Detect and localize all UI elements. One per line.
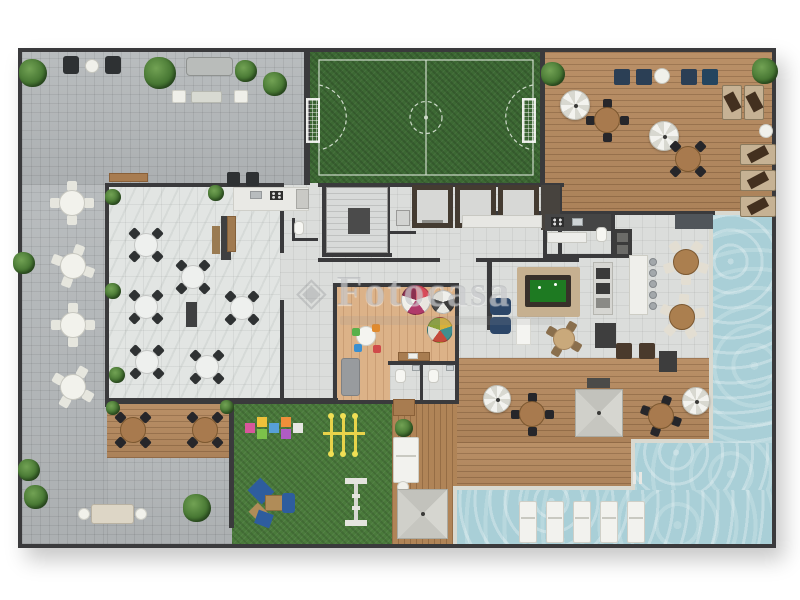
chair (678, 294, 689, 305)
planter-box (587, 378, 610, 388)
swing-post-cap (328, 413, 334, 419)
shrub (235, 60, 257, 82)
round-side-table (78, 508, 90, 520)
navy-pouf (702, 69, 718, 85)
in-pool-lounger (600, 501, 618, 543)
gourmet-table (673, 249, 699, 275)
chair (84, 198, 94, 208)
toilet (294, 221, 304, 235)
garden-bench (91, 504, 134, 524)
potted-plant (105, 189, 121, 205)
microwave (596, 298, 610, 308)
kids-chair (372, 324, 380, 332)
play-rug (401, 285, 431, 315)
party-table (135, 350, 159, 374)
wall-oven (596, 283, 610, 294)
ball-chair (654, 68, 670, 84)
fridge (296, 189, 309, 209)
bar-stool (649, 302, 657, 310)
party-table (134, 295, 158, 319)
lounger-backrest-line (548, 517, 561, 519)
hopscotch-tile (281, 417, 291, 427)
canopy-pole (597, 411, 601, 415)
shrub (183, 494, 211, 522)
shrub (19, 59, 47, 87)
shrub (263, 72, 287, 96)
swing-post-cap (352, 451, 358, 457)
kids-sofa (341, 358, 360, 396)
in-pool-lounger (573, 501, 591, 543)
billiard-ball (554, 283, 557, 286)
chair (545, 410, 554, 419)
hopscotch-tile (257, 417, 267, 427)
wall-oven (596, 268, 610, 279)
washbasin (446, 365, 454, 371)
floor-plan: ◈ Fotocasa (0, 0, 800, 600)
chair (620, 116, 629, 125)
balance-beam-rung (352, 506, 360, 510)
swing-post (342, 415, 345, 455)
pool-deck-2 (457, 443, 635, 490)
in-pool-lounger (627, 501, 645, 543)
party-table (181, 265, 205, 289)
soccer-goal (522, 98, 536, 143)
wall (333, 283, 459, 287)
deck-chair (616, 343, 632, 359)
shade-canopy (397, 489, 448, 539)
patio-umbrella (682, 387, 710, 415)
island-counter (547, 232, 587, 243)
potted-plant (220, 400, 234, 414)
double-lounger (393, 437, 419, 483)
lounger-towel (745, 92, 763, 113)
gourmet-table (669, 304, 695, 330)
swing-post-cap (328, 451, 334, 457)
navy-armchair (490, 298, 511, 315)
chair (68, 337, 78, 347)
lounger-towel (723, 92, 741, 113)
pool-water-mid (635, 443, 772, 491)
hopscotch-tile (281, 429, 291, 439)
hopscotch-tile (257, 429, 267, 439)
swing-post (330, 415, 333, 455)
wall (292, 238, 318, 241)
wood-console (212, 226, 220, 254)
billiards-felt (530, 280, 566, 302)
wall (390, 231, 416, 234)
balance-beam-end (345, 520, 367, 526)
navy-pouf (614, 69, 630, 85)
lounger-backrest-line (629, 517, 642, 519)
sun-lounger (722, 85, 742, 120)
play-rug (431, 290, 455, 314)
patio-umbrella (560, 90, 590, 120)
fridge-door (617, 233, 628, 242)
chair (603, 133, 612, 142)
bar-counter (629, 255, 648, 315)
lounger-towel (747, 171, 770, 190)
terrace-table (60, 253, 86, 279)
terrace-table (60, 312, 86, 338)
cooktop (270, 191, 283, 200)
media-cabinet (595, 323, 616, 348)
shrub (18, 459, 40, 481)
navy-pouf (636, 69, 652, 85)
umbrella-pole (695, 400, 699, 404)
play-slide (282, 493, 295, 513)
bar-stool (649, 258, 657, 266)
umbrella-pole (663, 135, 667, 139)
pool-ladder (633, 472, 636, 484)
shrub (13, 252, 35, 274)
swing-post (354, 415, 357, 455)
toilet (596, 227, 607, 242)
in-pool-lounger (519, 501, 537, 543)
hopscotch-tile (293, 423, 303, 433)
kids-chair (352, 328, 360, 336)
hopscotch-tile (269, 423, 279, 433)
wall (322, 253, 392, 257)
sun-lounger (740, 170, 776, 191)
fridge-door (617, 245, 628, 254)
wall (229, 398, 234, 528)
kitchen-sink (250, 191, 262, 199)
bar-stool (649, 280, 657, 288)
deck-table (648, 403, 674, 429)
party-kitchen (280, 322, 335, 403)
balance-beam (354, 484, 358, 520)
sun-lounger (740, 196, 776, 217)
washbasin (412, 365, 420, 371)
in-pool-lounger (546, 501, 564, 543)
lounger-towel (747, 145, 770, 164)
lounger-backrest-line (396, 455, 416, 457)
party-table (230, 296, 254, 320)
wall (487, 258, 579, 262)
garden-sofa (186, 57, 233, 76)
canopy-pole (421, 512, 425, 516)
wall (318, 258, 440, 262)
kids-chair (373, 345, 381, 353)
umbrella-pole (496, 398, 500, 402)
potted-plant (105, 283, 121, 299)
terrace-table (59, 190, 85, 216)
bar-stool (649, 291, 657, 299)
wall (455, 283, 459, 403)
lounger-backrest-line (575, 517, 588, 519)
potted-plant (106, 401, 120, 415)
cooktop (551, 217, 564, 227)
service-closet (396, 210, 410, 226)
coffee-table (191, 91, 222, 103)
toilet (395, 369, 406, 383)
wall (420, 363, 423, 403)
terrace-table (60, 374, 86, 400)
deck-table (594, 107, 620, 133)
chair (85, 320, 95, 330)
toilet (428, 369, 439, 383)
lounger-towel (747, 197, 770, 216)
elevator-door (422, 220, 444, 223)
billiards-table (525, 275, 571, 307)
kids-chair (354, 344, 362, 352)
sun-lounger (740, 144, 776, 165)
chair (227, 172, 240, 186)
play-tower (265, 495, 283, 511)
wood-cabinet (227, 216, 236, 252)
hopscotch-tile (245, 423, 255, 433)
elevator (412, 185, 453, 228)
deck-table (675, 146, 701, 172)
bar-stool (649, 269, 657, 277)
lounger-backrest-line (521, 517, 534, 519)
counter-sink (408, 353, 418, 359)
stair-landing (348, 208, 370, 234)
swing-post-cap (340, 413, 346, 419)
lounge-armchair (105, 56, 121, 74)
pergola-bar (675, 214, 713, 229)
deck-table (519, 401, 545, 427)
party-table (134, 233, 158, 257)
umbrella-pole (574, 104, 578, 108)
buffet-cabinet (186, 302, 197, 327)
potted-plant (752, 58, 778, 84)
party-table (195, 355, 219, 379)
side-table (172, 90, 186, 103)
deck-chair (639, 343, 655, 359)
soccer-goal (306, 98, 320, 143)
pool-water-right (713, 215, 772, 447)
swing-post-cap (340, 451, 346, 457)
kitchen-sink (572, 218, 583, 226)
grill-cart (659, 351, 677, 372)
ball-chair (85, 59, 99, 73)
side-table (234, 90, 248, 103)
lounge-armchair (63, 56, 79, 74)
chair (528, 427, 537, 436)
wall (280, 300, 284, 402)
swing-beam (323, 432, 365, 435)
billiard-ball (538, 286, 541, 289)
chair (67, 215, 77, 225)
deck-table (120, 417, 146, 443)
navy-pouf (681, 69, 697, 85)
wood-bench (393, 399, 415, 416)
topiary (395, 419, 413, 437)
potted-plant (541, 62, 565, 86)
round-side-table (759, 124, 773, 138)
swing-post-cap (352, 413, 358, 419)
soccer-field (310, 52, 542, 183)
pool-ladder (639, 472, 642, 484)
wood-bench (109, 173, 148, 182)
lounger-backrest-line (602, 517, 615, 519)
upper-cabinets (462, 215, 542, 228)
card-table (553, 328, 575, 350)
deck-table (192, 417, 218, 443)
watermark-subtext (340, 316, 565, 325)
shade-canopy (575, 389, 623, 437)
shrub (144, 57, 176, 89)
patio-umbrella (483, 385, 511, 413)
chair (246, 172, 259, 186)
sun-lounger (744, 85, 764, 120)
wall (333, 283, 337, 402)
chair (681, 275, 691, 285)
potted-plant (208, 185, 224, 201)
round-side-table (135, 508, 147, 520)
shrub (24, 485, 48, 509)
potted-plant (109, 367, 125, 383)
balance-beam-rung (352, 494, 360, 498)
